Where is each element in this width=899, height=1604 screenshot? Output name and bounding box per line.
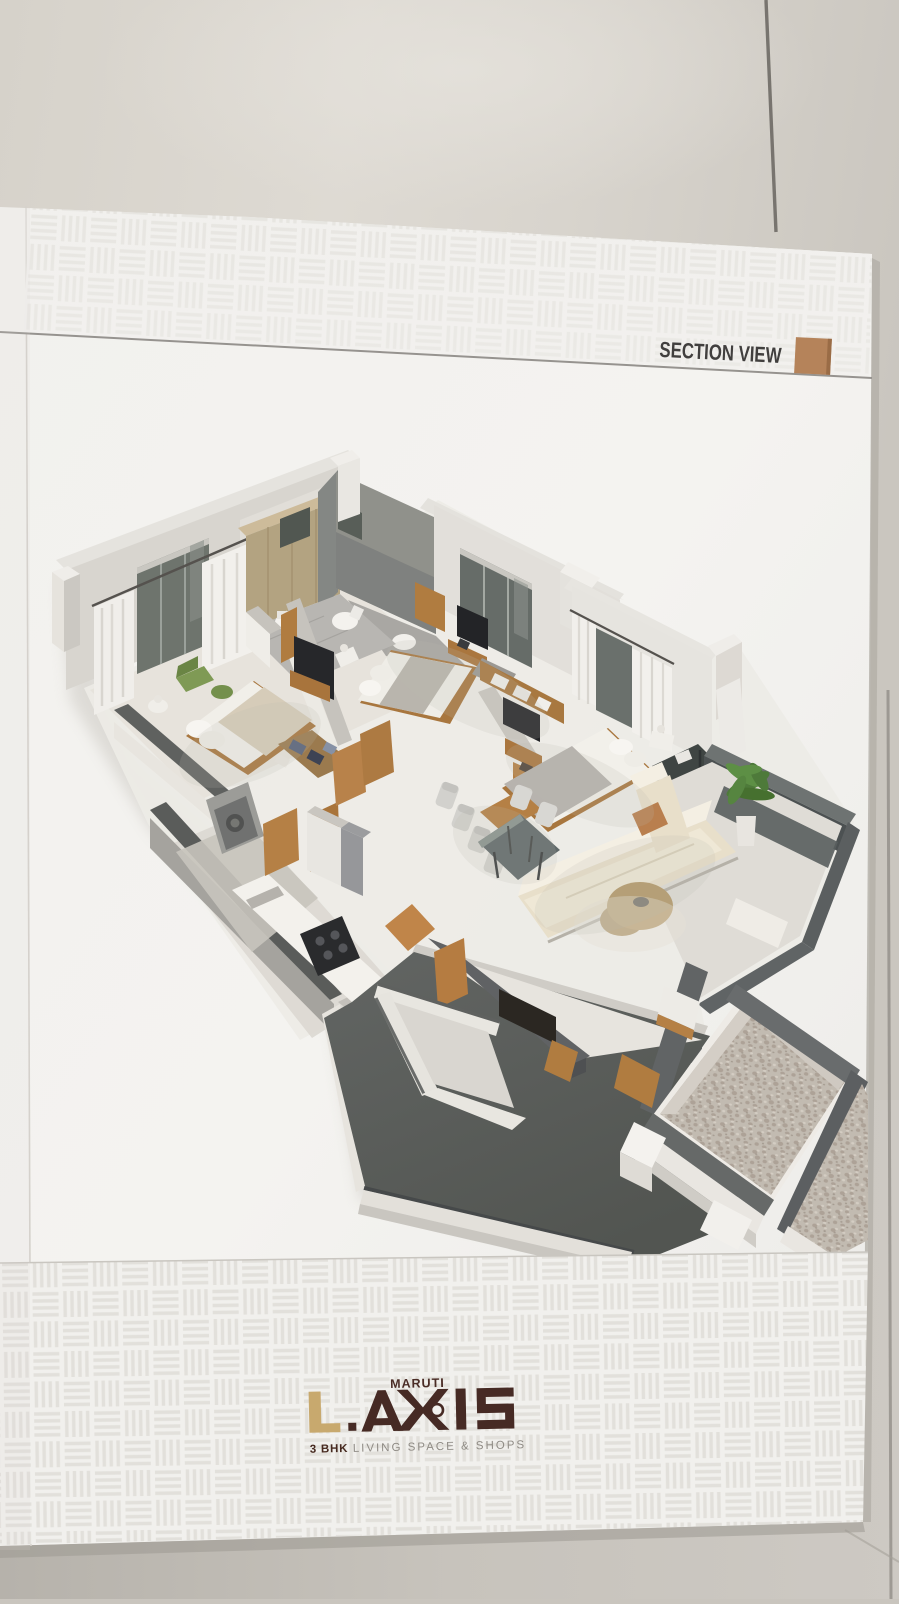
svg-text:3 BHK: 3 BHK (310, 1443, 349, 1456)
svg-text:MARUTI: MARUTI (390, 1376, 445, 1391)
